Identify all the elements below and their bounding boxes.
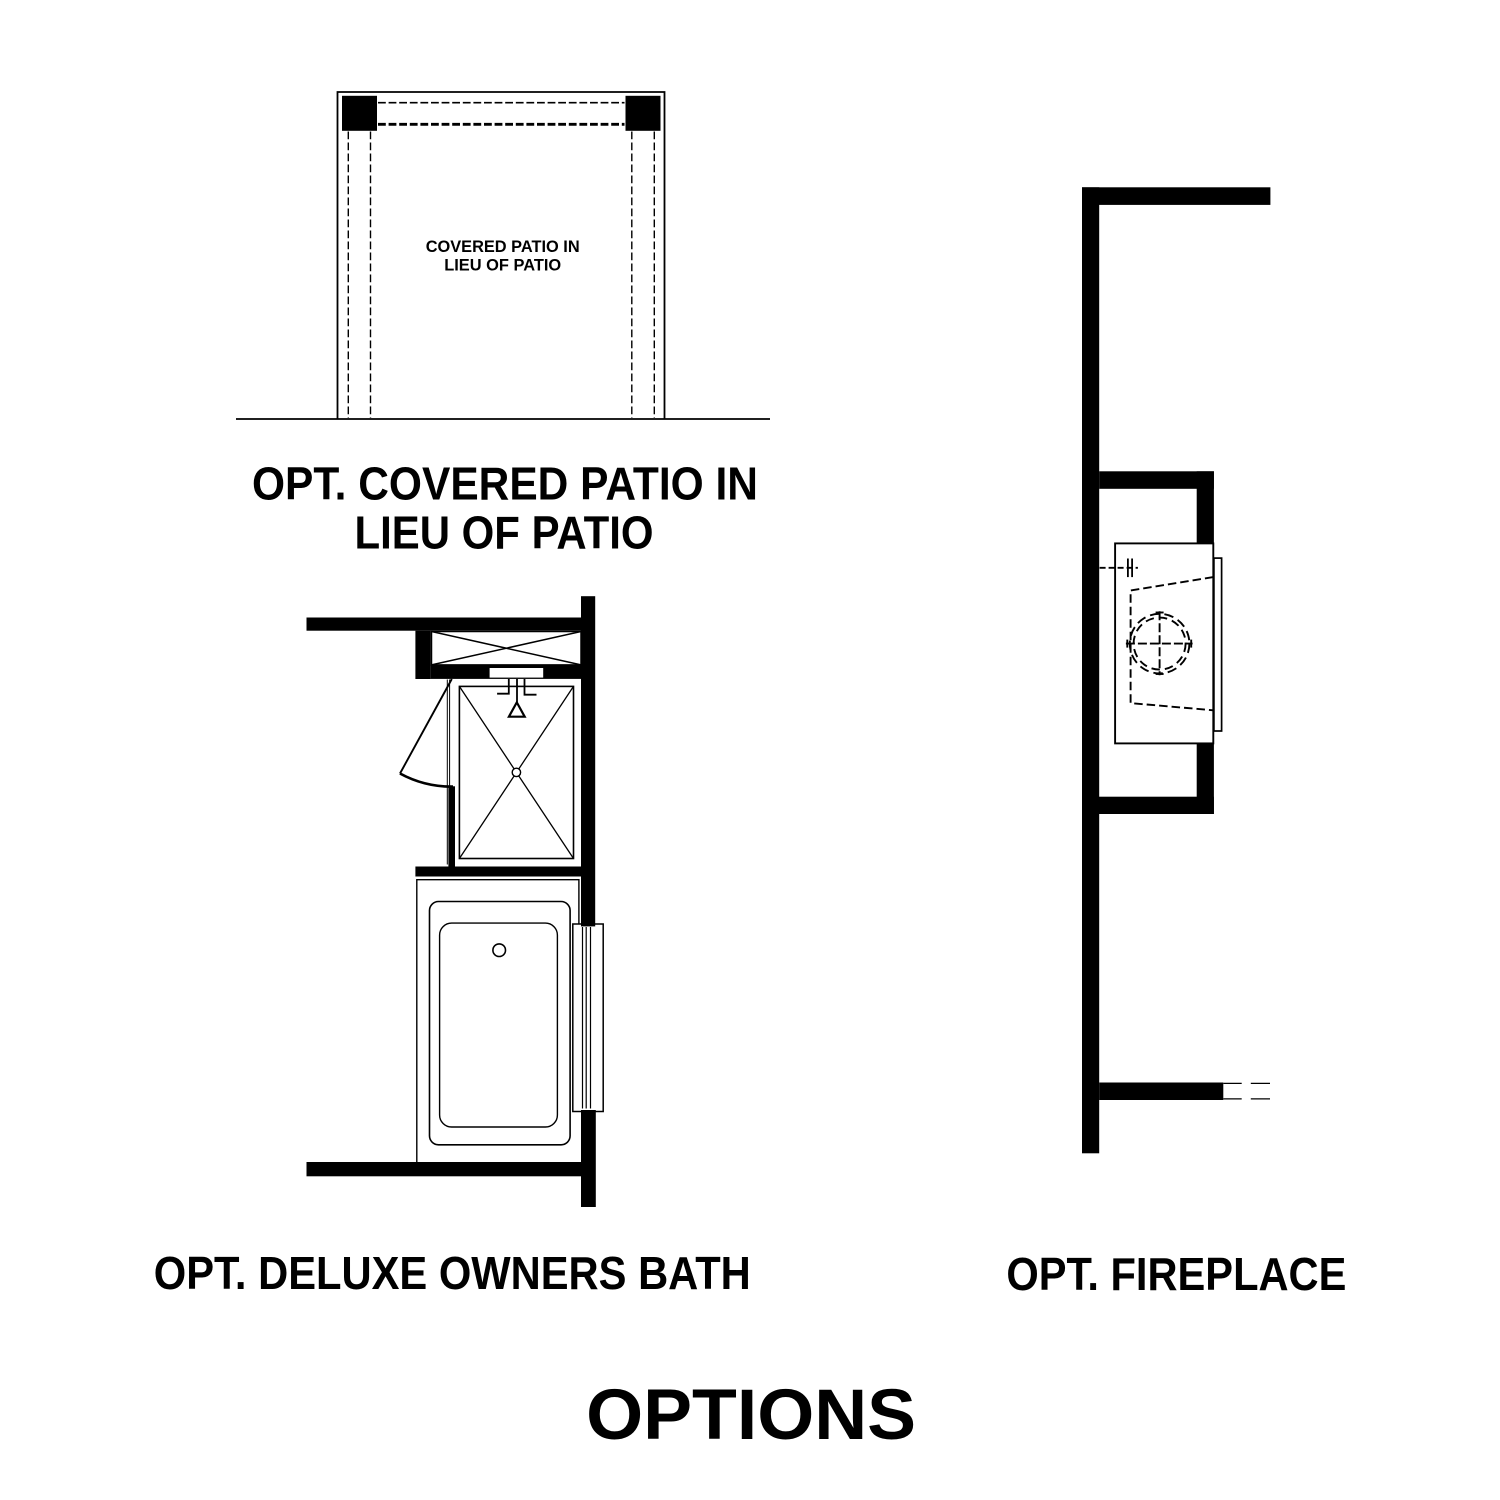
svg-text:LIEU OF PATIO: LIEU OF PATIO [355,507,654,559]
svg-text:OPTIONS: OPTIONS [586,1376,916,1455]
svg-text:OPT. DELUXE OWNERS BATH: OPT. DELUXE OWNERS BATH [154,1247,751,1299]
svg-text:OPT. COVERED PATIO IN: OPT. COVERED PATIO IN [252,458,758,510]
svg-text:LIEU OF PATIO: LIEU OF PATIO [444,255,561,274]
svg-text:OPT. FIREPLACE: OPT. FIREPLACE [1006,1248,1346,1300]
svg-text:COVERED PATIO IN: COVERED PATIO IN [426,237,580,256]
